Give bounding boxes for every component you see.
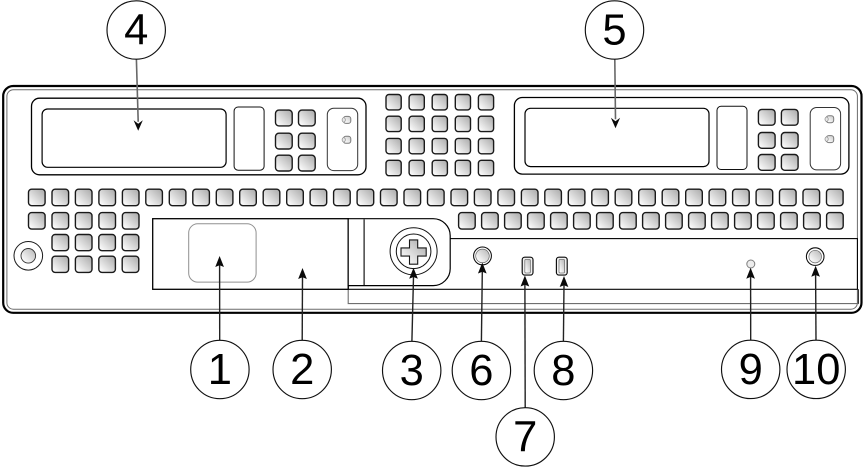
svg-text:6: 6 — [469, 347, 493, 395]
svg-text:4: 4 — [124, 6, 148, 54]
svg-text:5: 5 — [602, 6, 626, 54]
svg-text:9: 9 — [739, 346, 763, 394]
svg-text:1: 1 — [208, 346, 232, 394]
svg-text:2: 2 — [290, 346, 314, 394]
svg-text:7: 7 — [513, 413, 537, 461]
svg-text:3: 3 — [400, 347, 424, 395]
svg-text:8: 8 — [551, 347, 575, 395]
svg-text:10: 10 — [792, 346, 840, 394]
